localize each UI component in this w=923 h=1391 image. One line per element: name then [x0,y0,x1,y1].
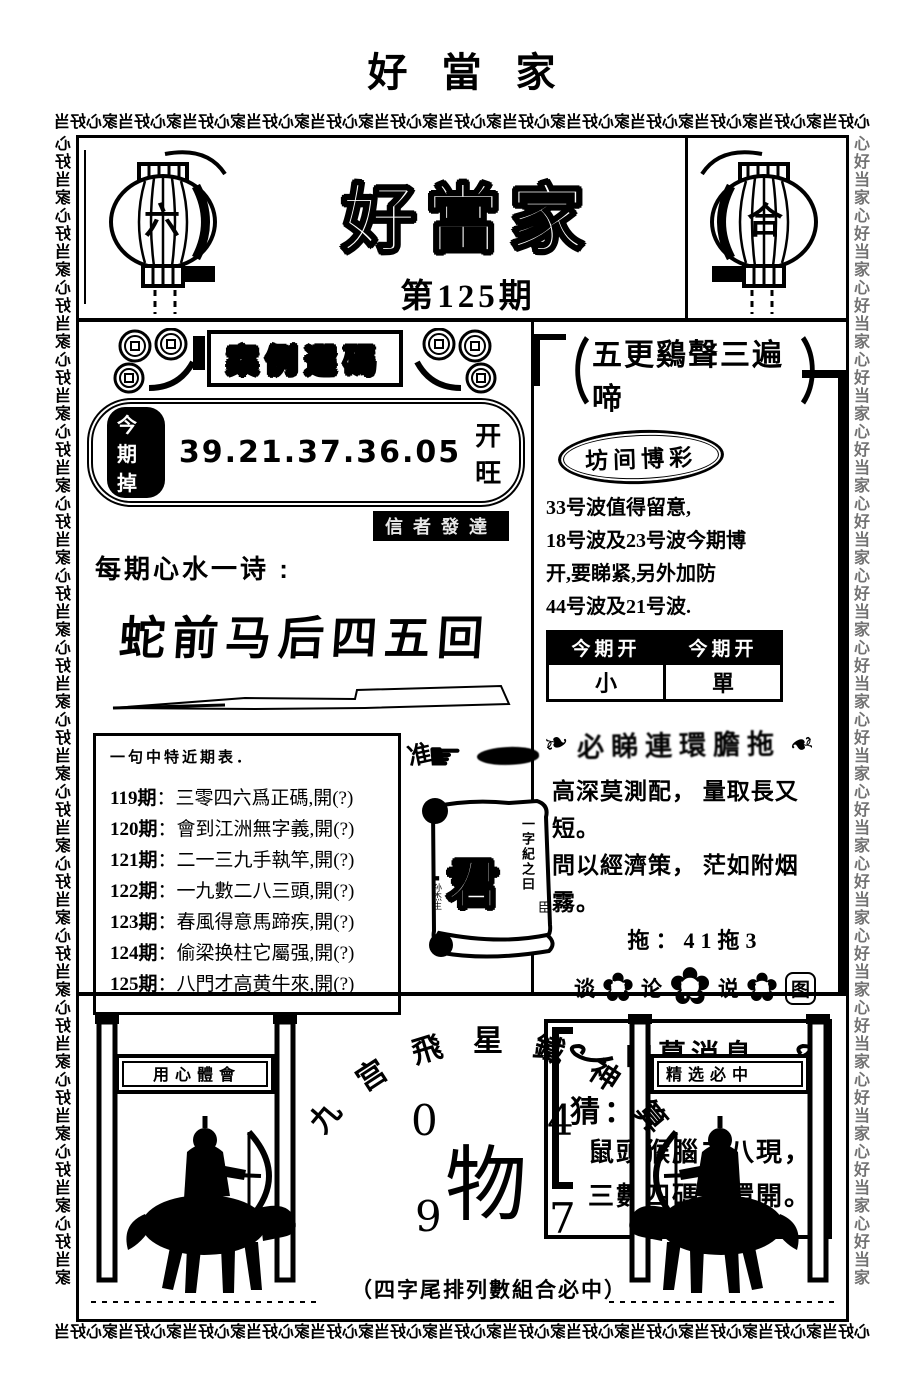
banner-center: 好當家 第125期 [251,138,685,318]
black-tag: 信者發達 [373,511,509,541]
advice-line: 开,要睇紧,另外加防 [546,558,846,591]
history-issue: 119期 [110,788,156,809]
case-header-box: 案例選碼 [207,330,403,387]
history-box: 一句中特近期表． 119期：三零四六爲正碼,開(?) 120期：會到江洲無字義,… [93,733,401,1015]
history-row: 122期：一九數二八三頭,開(?) [110,876,388,907]
history-row: 123期：春風得意馬蹄疾,開(?) [110,907,388,938]
lantern-left-icon: 六 [93,144,233,316]
banner: 六 好當家 第125期 [79,138,846,322]
scroll-main-char: 君 [447,843,499,918]
right-bracket-rule [802,370,846,996]
history-text: ：三零四六爲正碼,開(?) [156,788,353,809]
leaf-banner: ❧ 必睇連環膽拖 ❧ [544,724,846,763]
gate-banner-left: 用心體會 [121,1056,273,1090]
leaf-icon: ❧ [539,723,574,764]
knight-right: 精选必中 [594,1012,844,1312]
pill-label: 今期掉 [107,407,165,498]
arc-char: 星 [473,1016,503,1060]
coins-left-icon [109,328,201,394]
scroll-area: 准 ☛ 君 一字紀之曰 [401,733,531,1015]
pill-numbers: 39.21.37.36.05 [179,435,461,470]
history-text: ：春風得意馬蹄疾,開(?) [158,912,355,933]
poem-text: 蛇前马后四五回 [77,602,534,668]
advice-line: 33号波值得留意, [546,492,846,525]
issue-number: 第125期 [251,269,685,317]
case-header-row: 案例選碼 [79,322,531,394]
sword-icon [105,678,515,720]
history-text: ：一九數二八三頭,開(?) [158,881,355,902]
oval-stamp: 坊间博彩 [557,427,725,487]
sheet-frame: 心好当家心好当家心好当家心好当家心好当家心好当家心好当家心好当家心好当家心好当家… [55,112,870,1345]
leaf-banner-text: 必睇連環膽拖 [577,722,782,765]
advice-paragraph: 33号波值得留意, 18号波及23号波今期博 开,要睇紧,另外加防 44号波及2… [546,492,846,624]
history-row: 120期：會到江洲無字義,開(?) [110,814,388,845]
arc-char: 飛 [405,1022,447,1073]
history-text: ：會到江洲無字義,開(?) [158,819,355,840]
dan-tuo-line: 拖：41拖3 [544,923,846,955]
gate-banner-right: 精选必中 [634,1056,786,1090]
open-table-value: 小 [548,664,665,701]
lantern-right-char: 合 [732,192,798,244]
left-panel: 案例選碼 [79,322,534,992]
history-row: 124期：偷梁换柱它屬强,開(?) [110,938,388,969]
poem-label: 每期心水一诗 : [95,549,531,586]
lantern-left-char: 六 [129,192,195,244]
bracket-open: （ [544,340,590,409]
border-strip-top: 心好当家心好当家心好当家心好当家心好当家心好当家心好当家心好当家心好当家心好当家… [55,112,870,135]
history-issue: 120期 [110,819,158,840]
arc-char: 宫 [345,1046,394,1099]
history-issue: 124期 [110,943,158,964]
advice-line: 18号波及23号波今期博 [546,525,846,558]
banner-right-lantern-area: 合 [685,138,846,318]
history-row: 121期：二一三九手執竿,開(?) [110,845,388,876]
pill-suffix: 开旺 [475,416,505,490]
open-table-header: 今期开 [548,632,665,664]
history-row: 119期：三零四六爲正碼,開(?) [110,783,388,814]
right-panel: （ 五更鷄聲三遍啼 ） 坊间博彩 33号波值得留意, 18号波及23号波今期博 … [534,322,846,992]
banner-left-lantern-area: 六 [79,138,251,318]
history-text: ：偷梁换柱它屬强,開(?) [158,943,355,964]
right-header-text: 五更鷄聲三遍啼 [592,330,798,418]
arc-char: 鐵 [529,1022,571,1073]
case-header-text: 案例選碼 [227,344,383,379]
pointing-hand-icon: ☛ [427,733,463,780]
lantern-right-icon: 合 [694,144,834,316]
advice-line: 44号波及21号波. [546,591,846,624]
open-table: 今期开 今期开 小 單 [546,630,783,702]
square-center-char: 物 [445,1118,527,1237]
history-issue: 121期 [110,850,158,871]
coins-right-icon [409,328,501,394]
border-strip-bottom: 心好当家心好当家心好当家心好当家心好当家心好当家心好当家心好当家心好当家心好当家… [55,1322,870,1345]
square-number-bottom-right: 7 [549,1194,576,1243]
ink-smudge [476,745,539,767]
bracket-close: ） [800,340,846,409]
history-issue: 123期 [110,912,158,933]
square-number-top-left: 0 [411,1096,438,1145]
square-number-top-right: 4 [547,1096,574,1145]
scroll-signature: ■孙杰生 [431,873,444,910]
main-title: 好當家 [251,160,685,267]
sheet-inner: 六 好當家 第125期 [76,135,849,1322]
current-issue-pill: 今期掉 39.21.37.36.05 开旺 [91,402,521,503]
history-text: ：二一三九手執竿,開(?) [158,850,355,871]
border-strip-right: 心好当家心好当家心好当家心好当家心好当家心好当家心好当家心好当家心好当家心好当家… [849,135,870,1322]
bottom-caption: （四字尾排列數組合必中） [199,1274,779,1304]
lower-row: 一句中特近期表． 119期：三零四六爲正碼,開(?) 120期：會到江洲無字義,… [79,733,531,1015]
bottom-section: 用心體會 [79,992,846,1324]
right-header: （ 五更鷄聲三遍啼 ） [544,330,846,418]
open-table-value: 單 [665,664,782,701]
border-strip-left: 心好当家心好当家心好当家心好当家心好当家心好当家心好当家心好当家心好当家心好当家… [55,135,76,1322]
history-issue: 122期 [110,881,158,902]
knight-left: 用心體會 [81,1012,331,1312]
open-table-header: 今期开 [665,632,782,664]
history-header: 一句中特近期表． [110,746,388,767]
page-title: 好當家 [0,40,923,98]
tip-sheet-page: 好當家 心好当家心好当家心好当家心好当家心好当家心好当家心好当家心好当家心好当家… [0,0,923,1391]
square-number-bottom-left: 9 [415,1192,442,1241]
main-columns: 案例選碼 [79,322,846,992]
